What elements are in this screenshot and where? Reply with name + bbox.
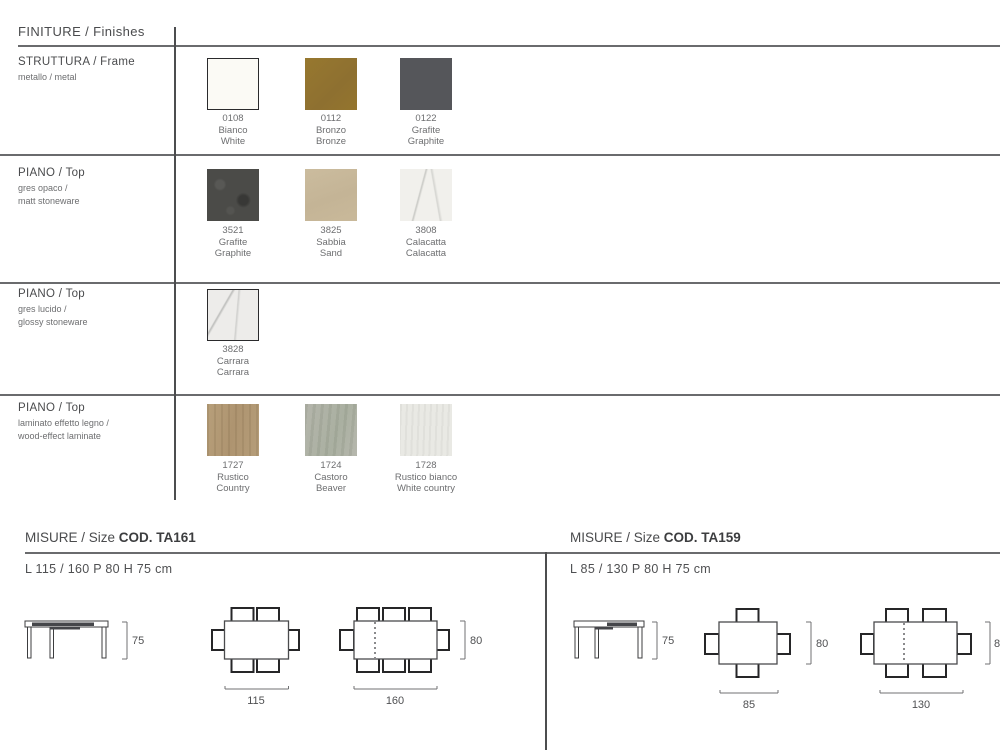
misure-heading-ta159: MISURE / Size COD. TA159 (570, 530, 741, 545)
depth-label: 80 (470, 635, 482, 647)
swatch-code: 0122 (356, 113, 496, 125)
divider-row-1 (0, 154, 1000, 156)
dimensions-ta161: L 115 / 160 P 80 H 75 cm (25, 562, 172, 576)
depth-label: 80 (816, 638, 828, 650)
swatch-3825-sabbia (305, 169, 357, 221)
swatch-label: 0122 Grafite Graphite (356, 113, 496, 148)
length-large-label: 160 (386, 695, 404, 707)
row-label-top-laminate: PIANO / Top laminato effetto legno / woo… (18, 402, 168, 443)
row-label-top-matt: PIANO / Top gres opaco / matt stoneware (18, 167, 168, 208)
length-small-label: 85 (743, 699, 755, 711)
swatch-label: 3828 Carrara Carrara (163, 344, 303, 379)
depth-label: 80 (994, 638, 1000, 650)
swatch-code: 1728 (356, 460, 496, 472)
row-label-top-glossy: PIANO / Top gres lucido / glossy stonewa… (18, 288, 168, 329)
depth-bracket (985, 622, 990, 664)
misure-label: MISURE / Size (25, 530, 115, 545)
row-subtitle: glossy stoneware (18, 316, 168, 329)
height-bracket (652, 622, 657, 659)
swatch-0108-bianco (207, 58, 259, 110)
swatch-0122-grafite (400, 58, 452, 110)
swatch-label: 1728 Rustico bianco White country (356, 460, 496, 495)
length-dim-line (225, 686, 289, 689)
height-label: 75 (132, 635, 144, 647)
depth-bracket (460, 621, 465, 659)
swatch-name-it: Calacatta (356, 237, 496, 249)
dimensions-ta159: L 85 / 130 P 80 H 75 cm (570, 562, 711, 576)
swatch-name-it: Carrara (163, 356, 303, 368)
divider-row-3 (0, 394, 1000, 396)
row-subtitle: laminato effetto legno / (18, 417, 168, 430)
table-top-view-85 (705, 609, 790, 677)
swatch-0112-bronzo (305, 58, 357, 110)
length-dim-line (880, 690, 963, 693)
swatch-3828-carrara (207, 289, 259, 341)
divider-vertical (174, 27, 176, 500)
swatch-1724-castoro (305, 404, 357, 456)
row-subtitle: gres opaco / (18, 182, 168, 195)
table-top-view-130 (861, 609, 971, 677)
misure-code: COD. TA161 (119, 530, 196, 545)
height-bracket (122, 622, 127, 659)
depth-bracket (806, 622, 811, 664)
table-top-view-115 (212, 608, 299, 672)
swatch-3808-calacatta (400, 169, 452, 221)
row-title: PIANO / Top (18, 167, 168, 179)
divider-misure-left (25, 552, 546, 554)
misure-label: MISURE / Size (570, 530, 660, 545)
swatch-3521-grafite (207, 169, 259, 221)
finiture-title: FINITURE / Finishes (18, 24, 145, 39)
swatch-name-en: Graphite (356, 136, 496, 148)
row-subtitle: wood-effect laminate (18, 430, 168, 443)
row-label-frame: STRUTTURA / Frame metallo / metal (18, 56, 168, 84)
swatch-name-it: Grafite (356, 125, 496, 137)
height-label: 75 (662, 635, 674, 647)
diagram-ta159: 75 85 80 130 80 (545, 592, 1000, 750)
divider-misure-right (546, 552, 1000, 554)
row-title: STRUTTURA / Frame (18, 56, 168, 68)
misure-heading-ta161: MISURE / Size COD. TA161 (25, 530, 196, 545)
swatch-name-en: Carrara (163, 367, 303, 379)
row-subtitle: matt stoneware (18, 195, 168, 208)
length-dim-line (354, 686, 437, 689)
divider-row-2 (0, 282, 1000, 284)
swatch-code: 3808 (356, 225, 496, 237)
diagram-ta161: 75 115 160 80 (10, 592, 530, 750)
length-small-label: 115 (247, 695, 265, 707)
swatch-name-en: Calacatta (356, 248, 496, 260)
row-subtitle: gres lucido / (18, 303, 168, 316)
divider-header (18, 45, 1000, 47)
length-dim-line (720, 690, 778, 693)
swatch-1727-rustico (207, 404, 259, 456)
misure-code: COD. TA159 (664, 530, 741, 545)
row-title: PIANO / Top (18, 402, 168, 414)
table-top-view-160 (340, 608, 449, 672)
table-side-view (25, 621, 108, 658)
swatch-label: 3808 Calacatta Calacatta (356, 225, 496, 260)
swatch-code: 3828 (163, 344, 303, 356)
swatch-name-it: Rustico bianco (356, 472, 496, 484)
swatch-1728-rustico-bianco (400, 404, 452, 456)
swatch-name-en: White country (356, 483, 496, 495)
row-subtitle: metallo / metal (18, 71, 168, 84)
table-side-view (574, 621, 644, 658)
row-title: PIANO / Top (18, 288, 168, 300)
catalog-page: FINITURE / Finishes STRUTTURA / Frame me… (0, 0, 1000, 750)
length-large-label: 130 (912, 699, 930, 711)
